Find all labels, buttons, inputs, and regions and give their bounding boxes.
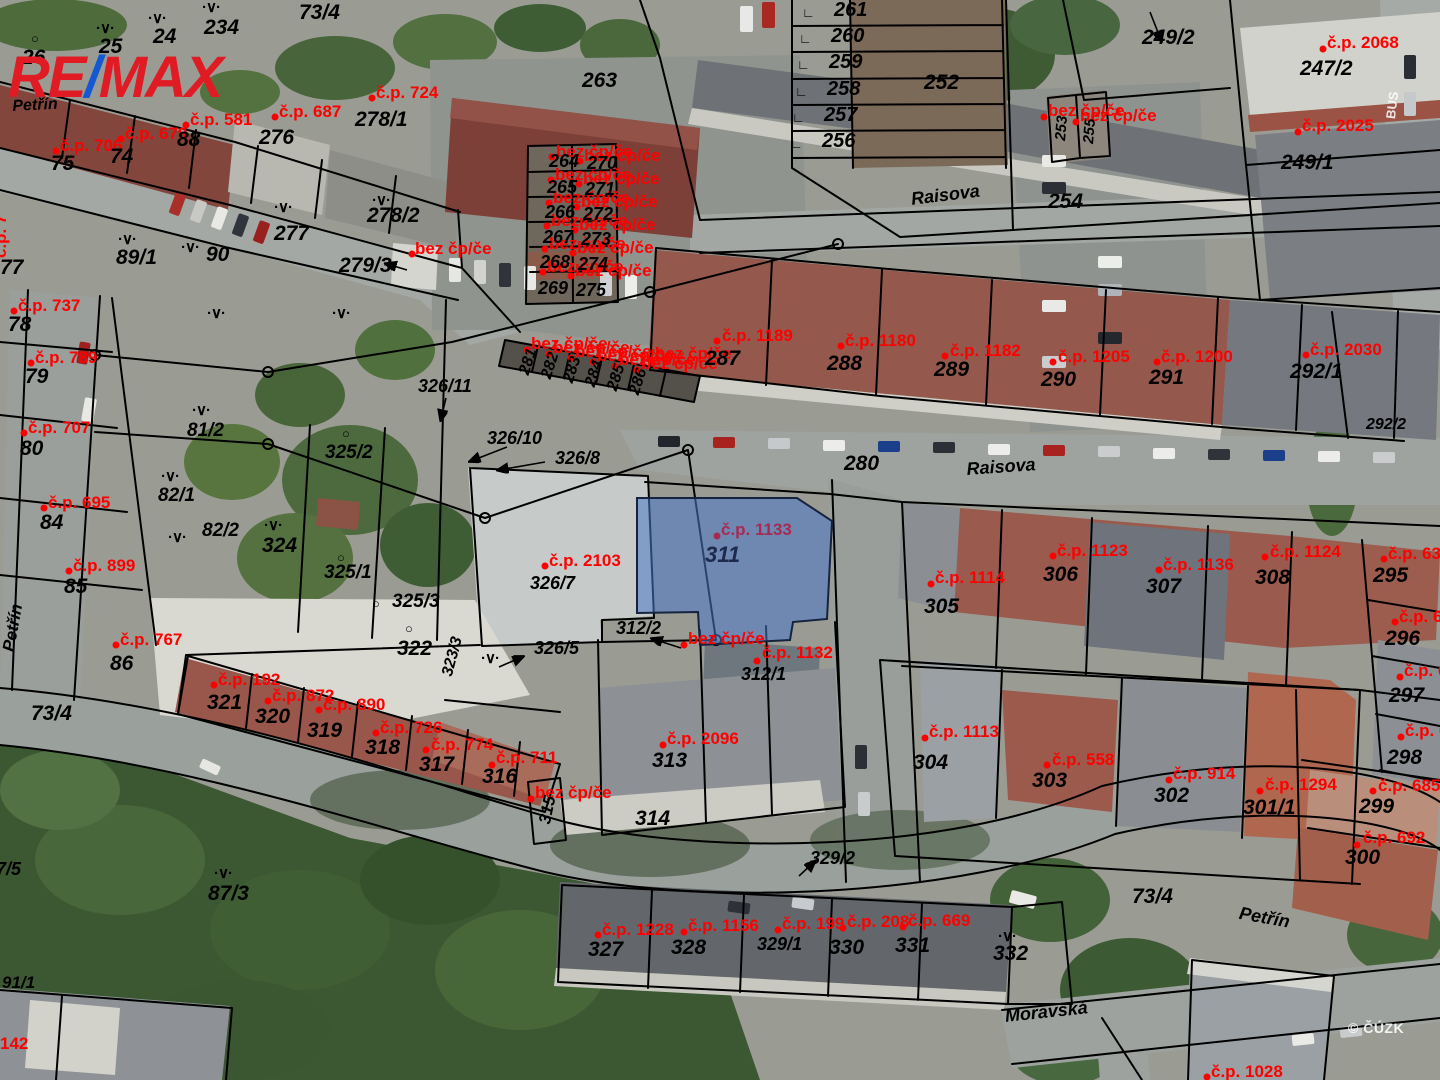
parcel-number-label: 322: [397, 638, 432, 659]
parcel-number-label: 296: [1385, 628, 1420, 649]
parcel-number-label: 254: [1048, 191, 1083, 212]
parcel-number-label: 290: [1041, 369, 1076, 390]
parcel-number-label: 249/1: [1281, 152, 1334, 173]
landuse-symbol: ·∨·: [148, 11, 166, 26]
label-dot: [648, 357, 655, 364]
house-number-label: č.p. 1205: [1058, 348, 1130, 365]
circle-symbol: ○: [337, 551, 345, 564]
label-dot: [211, 682, 218, 689]
label-dot: [1392, 619, 1399, 626]
house-number-label: č.p. 914: [1173, 765, 1235, 782]
label-dot: [838, 343, 845, 350]
label-dot: [1262, 554, 1269, 561]
parcel-number-label: 311: [705, 544, 740, 566]
landuse-symbol: ·∨·: [161, 469, 179, 484]
house-number-label: č.p. 737: [18, 297, 80, 314]
label-dot: [1381, 556, 1388, 563]
house-number-label: č.p. 669: [908, 912, 970, 929]
parcel-number-label: 328: [671, 937, 706, 958]
parcel-number-label: 282: [539, 351, 562, 381]
house-number-label: č.p. 724: [376, 84, 438, 101]
parcel-number-label: 79: [25, 366, 48, 387]
parcel-number-label: 82/2: [202, 521, 239, 540]
house-number-label: č.p. 1294: [1265, 776, 1337, 793]
landuse-symbol: ·∨·: [481, 651, 499, 666]
parcel-number-label: 82/1: [158, 486, 195, 505]
house-number-label: č.p. 63: [1399, 608, 1440, 625]
parcel-number-label: 264: [549, 152, 579, 170]
parcel-number-label: 308: [1255, 567, 1290, 588]
parcel-number-label: 283: [561, 355, 584, 385]
parcel-number-label: 247/2: [1300, 58, 1353, 79]
house-number-label: č.p. 687: [279, 103, 341, 120]
label-dot: [113, 642, 120, 649]
parcel-number-label: 277: [274, 223, 309, 244]
parcel-number-label: 267: [543, 228, 573, 246]
house-number-label: č.p. 695: [48, 494, 110, 511]
parcel-number-label: 306: [1043, 564, 1078, 585]
house-number-label: č.p. 1156: [688, 917, 759, 934]
parcel-number-label: 321: [207, 692, 242, 713]
parcel-number-label: 280: [844, 453, 879, 474]
parcel-number-label: 255: [1081, 118, 1098, 144]
label-dot: [1050, 359, 1057, 366]
no-number-label: bez čp/če: [688, 630, 765, 647]
house-number-label: č.p. 1028: [1211, 1063, 1283, 1080]
parcel-number-label: 330: [829, 937, 864, 958]
parcel-number-label: 300: [1345, 847, 1380, 868]
house-number-label: č.p. 2025: [1302, 117, 1374, 134]
house-number-label: č.p. 2068: [1327, 34, 1399, 51]
parcel-number-label: 303: [1032, 770, 1067, 791]
parcel-number-label: 260: [831, 26, 864, 46]
no-number-label: bez čp/če: [415, 240, 492, 257]
house-number-label: č.p. 692: [1363, 829, 1425, 846]
label-dot: [1073, 119, 1080, 126]
parcel-number-label: 84: [40, 512, 63, 533]
street-name-label: Moravská: [1004, 998, 1088, 1025]
parcel-number-label: 265: [547, 178, 577, 196]
parcel-number-label: 259: [829, 52, 862, 72]
landuse-symbol: ·∨·: [181, 240, 199, 255]
house-number-label: č.p. 558: [1052, 751, 1114, 768]
stair-symbol: ∟: [802, 6, 815, 19]
label-dot: [681, 642, 688, 649]
house-number-label: č.p. 774: [431, 736, 493, 753]
parcel-number-label: 325/2: [325, 443, 373, 462]
stair-symbol: ∟: [797, 58, 810, 71]
house-number-label: č.p. 726: [380, 719, 442, 736]
label-dot: [265, 698, 272, 705]
parcel-number-label: 256: [822, 131, 855, 151]
house-number-label: č.p. 2096: [667, 730, 739, 747]
house-number-label: 142: [0, 1035, 28, 1052]
parcel-number-label: 326/5: [534, 639, 579, 657]
label-dot: [1204, 1074, 1211, 1080]
parcel-number-label: 73/4: [299, 2, 340, 23]
house-number-label: č.p. 685: [1378, 777, 1440, 794]
label-dot: [1370, 788, 1377, 795]
parcel-number-label: 90: [206, 244, 229, 265]
label-dot: [1398, 734, 1405, 741]
parcel-number-label: 326/10: [487, 429, 542, 447]
label-dot: [1295, 129, 1302, 136]
parcel-number-label: 252: [924, 72, 959, 93]
label-dot: [66, 568, 73, 575]
street-name-label: Raisova: [910, 182, 981, 208]
house-number-label: č.p. 1136: [1163, 556, 1234, 573]
house-number-label: č.p. 199: [782, 915, 844, 932]
label-dot: [1397, 674, 1404, 681]
label-dot: [928, 581, 935, 588]
parcel-number-label: 307: [1146, 576, 1181, 597]
parcel-number-label: 315: [536, 794, 559, 825]
parcel-number-label: 292/1: [1290, 361, 1343, 382]
parcel-number-label: 295: [1373, 565, 1408, 586]
street-name-label: Petřín: [1238, 904, 1291, 931]
label-dot: [409, 251, 416, 258]
parcel-number-label: 85: [64, 576, 87, 597]
label-dot: [714, 533, 721, 540]
parcel-number-label: 291: [1149, 367, 1184, 388]
parcel-number-label: 329/1: [757, 935, 802, 953]
house-number-label: č.p. 6: [1404, 662, 1440, 679]
parcel-number-label: 263: [582, 70, 617, 91]
parcel-number-label: 314: [635, 808, 670, 829]
house-number-label: č.p. 1132: [762, 644, 833, 661]
label-dot: [900, 924, 907, 931]
parcel-number-label: 286: [627, 367, 650, 397]
house-number-label: č.p. 1228: [602, 921, 674, 938]
label-dot: [681, 929, 688, 936]
label-dot: [21, 430, 28, 437]
parcel-number-label: 234: [204, 17, 239, 38]
landuse-symbol: ·∨·: [998, 929, 1016, 944]
label-dot: [1156, 567, 1163, 574]
house-number-label: č.p. 638: [1388, 545, 1440, 562]
parcel-number-label: 284: [583, 359, 606, 389]
house-number-label: č.p. 1180: [845, 332, 916, 349]
label-dot: [528, 796, 535, 803]
parcel-number-label: 331: [895, 935, 930, 956]
label-dot: [1320, 46, 1327, 53]
parcel-number-label: 285: [605, 363, 628, 393]
parcel-number-label: 74: [110, 146, 133, 167]
parcel-number-label: 305: [924, 596, 959, 617]
parcel-number-label: 261: [834, 0, 867, 20]
label-dot: [1154, 359, 1161, 366]
parcel-number-label: 266: [545, 203, 575, 221]
house-number-label: č.p. 1200: [1161, 348, 1233, 365]
label-dot: [922, 735, 929, 742]
house-number-label: č.p. 6: [1405, 722, 1440, 739]
label-dot: [316, 707, 323, 714]
house-number-label: č.p. 7: [0, 215, 9, 258]
parcel-number-label: 269: [538, 279, 568, 297]
labels-layer: č.p. 724č.p. 687č.p. 581č.p. 679č.p. 706…: [0, 0, 1440, 1080]
parcel-number-label: 326/11: [418, 377, 472, 395]
label-dot: [1166, 777, 1173, 784]
house-number-label: č.p. 899: [73, 557, 135, 574]
stair-symbol: ∟: [790, 137, 803, 150]
parcel-number-label: 73/4: [31, 703, 72, 724]
street-name-label: Petřín: [0, 603, 25, 653]
house-number-label: č.p. 789: [35, 349, 97, 366]
parcel-number-label: 292/2: [1366, 417, 1406, 433]
parcel-number-label: 273: [581, 230, 611, 248]
street-name-label: Raisova: [966, 455, 1036, 478]
parcel-number-label: 87/5: [0, 860, 21, 878]
parcel-number-label: 313: [652, 750, 687, 771]
parcel-number-label: 78: [8, 314, 31, 335]
parcel-number-label: 317: [419, 754, 454, 775]
parcel-number-label: 297: [1389, 685, 1424, 706]
parcel-number-label: 302: [1154, 785, 1189, 806]
house-number-label: č.p. 2030: [1310, 341, 1382, 358]
circle-symbol: ○: [342, 427, 350, 440]
house-number-label: č.p. 1182: [950, 342, 1021, 359]
label-dot: [1257, 788, 1264, 795]
cuzk-watermark: © ČÚZK: [1348, 1020, 1404, 1036]
label-dot: [1041, 114, 1048, 121]
parcel-number-label: 327: [588, 939, 623, 960]
stair-symbol: ∟: [795, 85, 808, 98]
label-dot: [840, 925, 847, 932]
remax-logo-max: MAX: [99, 45, 222, 110]
parcel-number-label: 287: [705, 348, 740, 369]
landuse-symbol: ·∨·: [372, 193, 390, 208]
house-number-label: č.p. 1124: [1270, 543, 1341, 560]
parcel-number-label: 77: [0, 257, 23, 278]
remax-logo-slash: /: [85, 45, 99, 110]
parcel-number-label: 279/3: [339, 255, 392, 276]
parcel-number-label: 319: [307, 720, 342, 741]
parcel-number-label: 329/2: [810, 849, 855, 867]
label-dot: [775, 927, 782, 934]
parcel-number-label: 299: [1359, 796, 1394, 817]
circle-symbol: ○: [372, 597, 380, 610]
parcel-number-label: 320: [255, 706, 290, 727]
parcel-number-label: 318: [365, 737, 400, 758]
label-dot: [1303, 352, 1310, 359]
label-dot: [1044, 762, 1051, 769]
landuse-symbol: ·∨·: [207, 306, 225, 321]
house-number-label: č.p. 711: [496, 749, 557, 766]
house-number-label: č.p. 1113: [929, 723, 999, 740]
parcel-number-label: 316: [482, 766, 517, 787]
label-dot: [1050, 553, 1057, 560]
landuse-symbol: ·∨·: [118, 232, 136, 247]
remax-logo-re: RE: [8, 45, 85, 110]
parcel-number-label: 272: [583, 205, 613, 223]
stair-symbol: ∟: [792, 111, 805, 124]
landuse-symbol: ·∨·: [192, 403, 210, 418]
cadastral-map: č.p. 724č.p. 687č.p. 581č.p. 679č.p. 706…: [0, 0, 1440, 1080]
parcel-number-label: 257: [824, 105, 857, 125]
parcel-number-label: 87/3: [208, 883, 249, 904]
parcel-number-label: 75: [51, 153, 74, 174]
house-number-label: č.p. 890: [323, 696, 385, 713]
parcel-number-label: 312/2: [616, 619, 661, 637]
label-dot: [570, 250, 577, 257]
parcel-number-label: 326/8: [555, 449, 600, 467]
label-dot: [369, 95, 376, 102]
parcel-number-label: 249/2: [1142, 27, 1195, 48]
parcel-number-label: 73/4: [1132, 886, 1173, 907]
parcel-number-label: 304: [913, 752, 948, 773]
label-dot: [568, 273, 575, 280]
bus-road-marking: BUS: [1384, 91, 1400, 120]
landuse-symbol: ·∨·: [202, 0, 220, 15]
house-number-label: č.p. 1189: [722, 327, 793, 344]
landuse-symbol: ·∨·: [264, 518, 282, 533]
parcel-number-label: 325/3: [392, 592, 440, 611]
stair-symbol: ∟: [799, 32, 812, 45]
parcel-number-label: 88: [177, 129, 200, 150]
parcel-number-label: 80: [20, 438, 43, 459]
circle-symbol: ○: [405, 622, 413, 635]
parcel-number-label: 298: [1387, 747, 1422, 768]
landuse-symbol: ·∨·: [96, 21, 114, 36]
parcel-number-label: 276: [259, 127, 294, 148]
landuse-symbol: ·∨·: [332, 306, 350, 321]
parcel-number-label: 325/1: [324, 563, 372, 582]
house-number-label: č.p. 581: [190, 111, 252, 128]
parcel-number-label: 326/7: [530, 574, 575, 592]
parcel-number-label: 288: [827, 353, 862, 374]
parcel-number-label: 289: [934, 359, 969, 380]
parcel-number-label: 324: [262, 535, 297, 556]
house-number-label: č.p. 1114: [935, 569, 1005, 586]
parcel-number-label: 323/3: [440, 635, 466, 678]
parcel-number-label: 332: [993, 943, 1028, 964]
house-number-label: č.p. 2103: [549, 552, 621, 569]
parcel-number-label: 268: [540, 253, 570, 271]
parcel-number-label: 258: [827, 79, 860, 99]
parcel-number-label: 275: [576, 281, 606, 299]
parcel-number-label: 253: [1053, 115, 1070, 141]
parcel-number-label: 281: [517, 347, 540, 377]
landuse-symbol: ·∨·: [168, 530, 186, 545]
parcel-number-label: 91/1: [2, 974, 35, 991]
house-number-label: č.p. 1123: [1057, 542, 1128, 559]
parcel-number-label: 271: [585, 180, 615, 198]
house-number-label: č.p. 1133: [721, 521, 792, 538]
parcel-number-label: 278/1: [355, 109, 408, 130]
label-dot: [660, 742, 667, 749]
parcel-number-label: 81/2: [187, 421, 224, 440]
parcel-number-label: 270: [587, 154, 617, 172]
landuse-symbol: ·∨·: [274, 200, 292, 215]
parcel-number-label: 86: [110, 653, 133, 674]
landuse-symbol: ·∨·: [214, 866, 232, 881]
parcel-number-label: 301/1: [1243, 797, 1296, 818]
parcel-number-label: 274: [578, 255, 608, 273]
remax-logo: RE/MAX: [8, 44, 222, 111]
house-number-label: č.p. 767: [120, 631, 182, 648]
parcel-number-label: 312/1: [741, 665, 786, 683]
label-dot: [272, 114, 279, 121]
label-dot: [542, 563, 549, 570]
house-number-label: č.p. 707: [28, 419, 90, 436]
parcel-number-label: 89/1: [116, 247, 157, 268]
